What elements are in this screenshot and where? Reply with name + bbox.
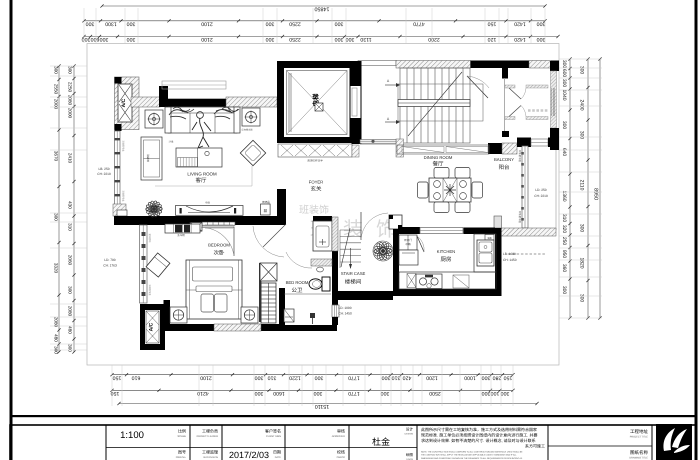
svg-text:DRAWING TITLE: DRAWING TITLE — [629, 457, 648, 460]
svg-text:双轨窗帘盒: 双轨窗帘盒 — [518, 150, 522, 163]
svg-text:校核: 校核 — [337, 450, 345, 455]
svg-text:1600: 1600 — [273, 390, 285, 396]
svg-text:2100: 2100 — [200, 374, 212, 380]
svg-text:300: 300 — [537, 36, 546, 42]
svg-text:装饰品: 装饰品 — [262, 200, 270, 204]
svg-text:300: 300 — [100, 36, 109, 42]
svg-text:4770: 4770 — [413, 20, 425, 26]
svg-text:LIVING ROOM: LIVING ROOM — [187, 172, 217, 177]
svg-text:3320: 3320 — [54, 263, 59, 274]
svg-text:8950: 8950 — [593, 188, 599, 200]
svg-text:APPROVED: APPROVED — [332, 435, 346, 438]
svg-text:电视: 电视 — [205, 201, 210, 204]
svg-text:沙发: 沙发 — [169, 140, 174, 144]
svg-text:工程地址: 工程地址 — [630, 429, 648, 434]
svg-text:610: 610 — [132, 374, 141, 380]
svg-text:310: 310 — [392, 374, 401, 380]
svg-text:LB: 1030: LB: 1030 — [503, 252, 516, 256]
svg-text:双轨窗帘盒: 双轨窗帘盒 — [148, 285, 151, 297]
svg-text:300: 300 — [127, 36, 136, 42]
svg-text:CH: 1450: CH: 1450 — [338, 312, 352, 316]
svg-text:CH: 2210: CH: 2210 — [534, 194, 548, 198]
svg-text:CH: 1763: CH: 1763 — [103, 264, 117, 268]
svg-text:五斗柜: 五斗柜 — [177, 233, 185, 237]
svg-text:绘图: 绘图 — [406, 452, 414, 457]
svg-text:厨房: 厨房 — [440, 256, 452, 263]
svg-text:3670: 3670 — [54, 151, 59, 162]
svg-text:BEDROOM: BEDROOM — [208, 243, 230, 248]
svg-text:2410: 2410 — [68, 153, 73, 164]
svg-text:2500: 2500 — [429, 390, 441, 396]
svg-text:求达到设计效果. 如有不清楚的尺寸. 设计概念, 请及时与设: 求达到设计效果. 如有不清楚的尺寸. 设计概念, 请及时与设计联系 — [421, 438, 536, 443]
svg-text:DWG No.: DWG No. — [176, 456, 187, 459]
svg-text:1200: 1200 — [426, 374, 438, 380]
svg-text:300: 300 — [127, 20, 136, 26]
svg-text:图号: 图号 — [178, 450, 186, 455]
svg-text:1420: 1420 — [514, 36, 526, 42]
svg-text:2110: 2110 — [579, 180, 585, 191]
svg-text:2200: 2200 — [428, 36, 440, 42]
svg-text:14850: 14850 — [315, 6, 330, 12]
svg-text:KITCHEN: KITCHEN — [437, 249, 455, 254]
svg-text:250: 250 — [561, 237, 567, 246]
svg-text:客厅: 客厅 — [195, 177, 207, 184]
svg-text:阳台: 阳台 — [498, 164, 510, 171]
svg-text:300: 300 — [537, 20, 546, 26]
svg-text:1770: 1770 — [348, 390, 360, 396]
svg-text:280: 280 — [493, 374, 502, 380]
svg-text:300: 300 — [68, 344, 73, 352]
svg-text:CH: 2210: CH: 2210 — [97, 172, 111, 176]
svg-text:300: 300 — [335, 20, 344, 26]
svg-text:300: 300 — [579, 66, 585, 75]
svg-text:480: 480 — [68, 326, 73, 334]
svg-text:BALCONY: BALCONY — [494, 157, 514, 162]
svg-text:次卧: 次卧 — [213, 250, 225, 257]
svg-text:1130: 1130 — [360, 36, 371, 42]
svg-text:装饰柜: 装饰柜 — [146, 154, 150, 162]
svg-text:CH: 1450: CH: 1450 — [503, 258, 517, 262]
svg-text:DINING ROOM: DINING ROOM — [424, 155, 453, 160]
svg-text:图纸名称: 图纸名称 — [630, 450, 648, 455]
svg-text:2060: 2060 — [68, 255, 73, 266]
svg-text:班装饰: 班装饰 — [299, 204, 329, 216]
svg-text:480: 480 — [54, 334, 59, 342]
svg-text:100: 100 — [491, 390, 500, 396]
svg-text:2000: 2000 — [54, 99, 59, 110]
svg-text:300: 300 — [86, 20, 95, 26]
svg-text:1040: 1040 — [561, 89, 567, 100]
svg-text:360: 360 — [561, 264, 567, 273]
svg-text:300: 300 — [255, 374, 264, 380]
svg-text:此图所示尺寸需在工地复核为准，施工方式及选用材料需符合国家: 此图所示尺寸需在工地复核为准，施工方式及选用材料需符合国家 — [421, 427, 537, 432]
svg-text:300: 300 — [266, 20, 275, 26]
svg-text:蓝牙音响: 蓝牙音响 — [148, 234, 151, 244]
svg-text:2400: 2400 — [579, 99, 585, 110]
svg-text:A/C: A/C — [121, 98, 127, 107]
svg-text:双轨窗帘盒: 双轨窗帘盒 — [122, 141, 125, 153]
svg-text:300: 300 — [314, 390, 323, 396]
svg-text:150: 150 — [488, 20, 497, 26]
svg-text:杜金: 杜金 — [372, 437, 390, 447]
svg-text:430: 430 — [68, 201, 73, 209]
svg-text:600: 600 — [561, 69, 567, 78]
svg-text:双轨窗帘盒: 双轨窗帘盒 — [122, 191, 125, 203]
svg-text:2250: 2250 — [289, 20, 301, 26]
svg-text:2250: 2250 — [68, 82, 73, 93]
svg-text:300: 300 — [382, 374, 391, 380]
svg-text:客户签名: 客户签名 — [265, 429, 281, 434]
svg-text:2550: 2550 — [54, 84, 59, 95]
svg-text:310: 310 — [68, 223, 73, 231]
svg-text:150: 150 — [504, 374, 513, 380]
svg-text:DATE: DATE — [275, 456, 282, 459]
svg-text:规范标准. 施工单位必须按照设计图纸内的设计意向进行施工.: 规范标准. 施工单位必须按照设计图纸内的设计意向进行施工. 并要 — [421, 433, 537, 438]
svg-text:1820: 1820 — [579, 257, 585, 268]
svg-text:600: 600 — [91, 36, 100, 42]
svg-text:2000: 2000 — [68, 108, 73, 119]
svg-text:2080: 2080 — [68, 95, 73, 106]
svg-text:320: 320 — [561, 225, 567, 234]
svg-text:日期: 日期 — [273, 450, 281, 455]
svg-text:THE CONTRACTOR SHALL APPLY THE: THE CONTRACTOR SHALL APPLY THE REGULATIO… — [421, 454, 517, 457]
svg-text:比例: 比例 — [178, 429, 186, 434]
svg-text:反向棚出图: 反向棚出图 — [242, 129, 253, 132]
svg-text:300: 300 — [561, 60, 567, 69]
svg-text:餐厅: 餐厅 — [432, 161, 444, 168]
svg-text:1420: 1420 — [514, 20, 526, 26]
svg-text:1300: 1300 — [105, 20, 117, 26]
svg-text:PROJECT LEADER: PROJECT LEADER — [197, 435, 219, 438]
svg-text:冰箱: 冰箱 — [405, 242, 411, 246]
svg-text:120: 120 — [488, 36, 497, 42]
svg-text:1:100: 1:100 — [120, 430, 144, 441]
svg-text:双轨窗帘盒: 双轨窗帘盒 — [518, 211, 522, 224]
svg-text:1000: 1000 — [464, 374, 476, 380]
svg-text:1770: 1770 — [348, 374, 360, 380]
svg-text:工程负责: 工程负责 — [202, 429, 218, 434]
svg-text:640: 640 — [561, 148, 567, 157]
svg-text:LD: 250: LD: 250 — [535, 188, 546, 192]
svg-text:2100: 2100 — [201, 36, 213, 42]
svg-text:300: 300 — [68, 66, 73, 74]
svg-text:300: 300 — [82, 36, 91, 42]
svg-text:装饰栏杆扶手: 装饰栏杆扶手 — [307, 159, 323, 163]
svg-text:A/C: A/C — [149, 322, 155, 331]
svg-text:玄关: 玄关 — [310, 186, 322, 193]
svg-text:300: 300 — [335, 36, 344, 42]
svg-text:300: 300 — [54, 66, 59, 74]
svg-text:300: 300 — [561, 286, 567, 295]
svg-text:CHECK: CHECK — [337, 456, 346, 459]
svg-text:300: 300 — [482, 374, 491, 380]
svg-text:300: 300 — [255, 390, 264, 396]
svg-text:300: 300 — [501, 390, 510, 396]
svg-text:2250: 2250 — [289, 36, 301, 42]
svg-text:310: 310 — [268, 374, 277, 380]
svg-text:系方可施工: 系方可施工 — [525, 444, 545, 449]
svg-text:2017/2/03: 2017/2/03 — [229, 450, 269, 460]
svg-text:1220: 1220 — [289, 374, 301, 380]
svg-text:300: 300 — [315, 374, 324, 380]
svg-text:300: 300 — [68, 286, 73, 294]
svg-text:2100: 2100 — [201, 20, 213, 26]
svg-text:DESIGN: DESIGN — [405, 433, 414, 436]
svg-text:300: 300 — [579, 131, 585, 140]
svg-text:双开门: 双开门 — [404, 238, 412, 242]
svg-text:300: 300 — [381, 390, 390, 396]
svg-text:15110: 15110 — [315, 403, 330, 409]
svg-text:PROJECT TITLE: PROJECT TITLE — [630, 436, 649, 439]
svg-text:楼梯间: 楼梯间 — [345, 279, 362, 286]
svg-text:审核: 审核 — [337, 429, 345, 434]
svg-text:FOYER: FOYER — [309, 180, 323, 185]
svg-text:300: 300 — [346, 36, 355, 42]
svg-text:300: 300 — [579, 224, 585, 233]
svg-text:950: 950 — [561, 250, 567, 259]
svg-text:SCALE: SCALE — [177, 435, 186, 438]
svg-text:300: 300 — [266, 36, 275, 42]
svg-text:LD: 700: LD: 700 — [104, 258, 115, 262]
svg-text:CLIENT SIGN: CLIENT SIGN — [266, 435, 281, 438]
svg-text:LD: 1000: LD: 1000 — [339, 306, 352, 310]
svg-text:300: 300 — [54, 213, 59, 221]
svg-text:300: 300 — [579, 294, 585, 303]
svg-text:310: 310 — [561, 214, 567, 223]
svg-text:LB: 250: LB: 250 — [99, 167, 110, 171]
svg-text:STAIR CASE: STAIR CASE — [341, 271, 366, 276]
svg-text:设计: 设计 — [406, 427, 414, 432]
svg-text:150: 150 — [113, 374, 122, 380]
svg-text:300: 300 — [561, 79, 567, 88]
svg-text:420: 420 — [403, 374, 412, 380]
svg-text:DIMENSIONS AND CONDITIONS SHOW: DIMENSIONS AND CONDITIONS SHOWN ON THE D… — [421, 457, 523, 460]
svg-text:2080: 2080 — [68, 306, 73, 317]
svg-text:BED ROOM: BED ROOM — [286, 280, 309, 285]
svg-text:300: 300 — [561, 121, 567, 130]
svg-text:公卫: 公卫 — [291, 287, 303, 294]
svg-text:SUPERVISION: SUPERVISION — [203, 456, 218, 459]
svg-text:NOTE: THE CONSTRUCTION SHALL C: NOTE: THE CONSTRUCTION SHALL CONFORM TO … — [421, 451, 523, 454]
svg-text:300: 300 — [482, 390, 491, 396]
svg-text:工程监理: 工程监理 — [202, 450, 218, 455]
